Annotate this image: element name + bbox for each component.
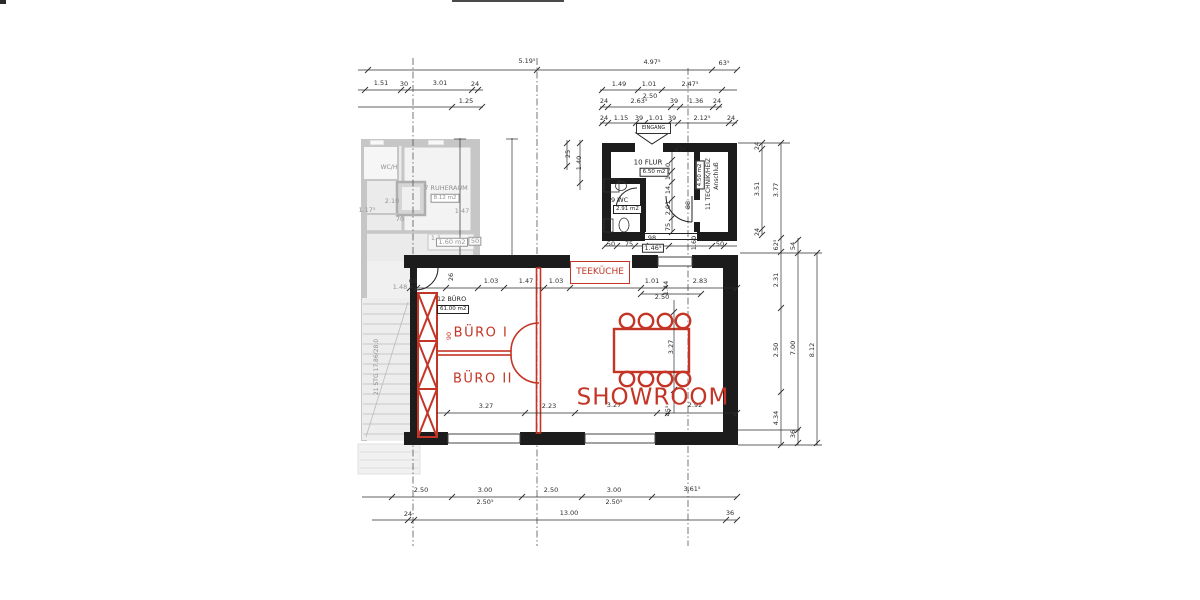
dim-label: 75 — [665, 223, 672, 231]
dim-label: 1.15 — [614, 115, 628, 122]
dim-label: 3.00 — [478, 487, 492, 494]
room-label-wc: 9 WC — [611, 197, 628, 204]
room-label-wch: WC/H — [381, 165, 398, 171]
dim-label: 1.60 m2 — [436, 238, 468, 247]
chairs — [620, 314, 690, 386]
room-label-buero1: BÜRO I — [454, 327, 509, 340]
dim-label: 1.03 — [549, 278, 563, 285]
dim-label: 3.51 — [754, 182, 761, 196]
dim-label: 1.03 — [484, 278, 498, 285]
dim-label: 1.36 — [689, 98, 703, 105]
dim-label: 2.47⁵ — [681, 81, 698, 88]
dim-label: 67⁵ — [675, 147, 686, 154]
dim-label: 2.12⁵ — [693, 115, 710, 122]
area-technik: 4.50 m2 — [696, 161, 705, 190]
dim-label: 3.27 — [668, 340, 675, 354]
dim-label: 54 — [790, 242, 797, 250]
dim-label: 1.60 — [691, 236, 698, 250]
dim-label: 4.34 — [773, 411, 780, 425]
conference-table — [614, 329, 689, 372]
dim-label: 24 — [600, 115, 608, 122]
dim-label: 62⁵ — [773, 240, 780, 251]
area-ruheraum: 8.12 m2 — [431, 194, 460, 203]
dim-label: 1.51 — [374, 80, 388, 87]
red-door-arc-down — [511, 355, 539, 383]
dim-label: 4.97⁵ — [643, 59, 660, 66]
dim-label: 50 — [607, 241, 615, 248]
dim-label: 39 — [635, 115, 643, 122]
scan-artifacts — [0, 0, 564, 4]
dim-label: 2.63⁵ — [630, 98, 647, 105]
dim-label: 50 — [468, 237, 481, 246]
dim-label: 39 — [668, 115, 676, 122]
red-partition-wall — [537, 268, 541, 433]
staircase — [362, 298, 412, 440]
dim-label: 1.40 — [576, 156, 583, 170]
dim-label: 14 — [665, 186, 672, 194]
dim-label: 1.01 — [649, 115, 663, 122]
black-door-topleft — [416, 268, 438, 290]
area-wc: 2.91 m2 — [613, 205, 642, 214]
floorplan-canvas: 5.19⁵4.97⁵63⁵1.51303.01241.251.491.012.4… — [0, 0, 1200, 600]
dim-label: 68 — [409, 278, 417, 285]
dim-label: 24 — [600, 98, 608, 105]
dim-label: 24 — [713, 98, 721, 105]
dim-label: 63⁵ — [719, 60, 730, 67]
red-partition-wall-h — [437, 351, 511, 355]
dim-label: 24 — [404, 511, 412, 518]
dim-label: 24 — [471, 81, 479, 88]
room-label-showroom: SHOWROOM — [577, 387, 730, 410]
dim-label: 2.83 — [693, 278, 707, 285]
dim-label: 24 — [727, 115, 735, 122]
dim-label: 2.50⁵ — [476, 499, 493, 506]
toilet — [619, 218, 629, 232]
dim-label: 1.47 — [455, 208, 469, 215]
dim-label: 3.77 — [773, 183, 780, 197]
dim-label: 75 — [625, 241, 633, 248]
dim-label: 24 — [754, 142, 761, 150]
dim-label: 1.17⁵ — [358, 207, 375, 214]
dim-label: 2.10 — [385, 198, 399, 205]
dim-label: 3.61⁵ — [683, 486, 700, 493]
dim-label: 2.01 — [665, 201, 672, 215]
dim-label: 2.50 — [655, 294, 669, 301]
stairs-label: 21 STG 17.86/28.0 — [374, 339, 380, 395]
dim-label: 39 — [670, 98, 678, 105]
entrance-arrow — [636, 133, 669, 144]
dim-label: 50 — [716, 241, 724, 248]
dim-label: 36 — [790, 430, 797, 438]
dim-label: 2.31 — [773, 273, 780, 287]
dim-label: 2.50⁵ — [605, 499, 622, 506]
room-label-buero12: 12 BÜRO — [437, 296, 466, 303]
red-column — [418, 293, 437, 437]
dim-label: 1.25 — [459, 98, 473, 105]
room-label-technik: 11 TECHNIK/HEIZ — [706, 158, 712, 210]
dim-label: 2.23 — [542, 403, 556, 410]
room-label-teekueche: TEEKÜCHE — [570, 261, 630, 284]
dim-label: 26 — [448, 273, 455, 281]
dim-label: 1.48 — [393, 284, 407, 291]
dim-label: 1.01 — [645, 278, 659, 285]
room-note-technik: Anschluß — [714, 162, 720, 189]
dim-label: 7.00 — [790, 341, 797, 355]
red-annotations — [418, 268, 690, 437]
dimension-lines — [358, 70, 822, 520]
dim-label: 3.00 — [607, 487, 621, 494]
dim-label: 3.27 — [479, 403, 493, 410]
dim-label: 98 — [648, 235, 656, 242]
dim-label: 2.50 — [544, 487, 558, 494]
dim-label: 70 — [396, 216, 404, 223]
dim-label: 25 — [565, 150, 572, 158]
area-flur: 6.50 m2 — [640, 168, 669, 177]
dim-label: 2.50 — [414, 487, 428, 494]
dim-label: 1.47 — [519, 278, 533, 285]
room-label-flur: 10 FLUR — [634, 160, 663, 167]
dim-label: 1.46⁵ — [642, 244, 664, 253]
door-width-label: 90 — [446, 332, 453, 340]
entrance-label: EINGANG — [636, 123, 671, 134]
dim-label: 1.49 — [612, 81, 626, 88]
dim-label: 88 — [685, 201, 692, 209]
room-label-buero2: BÜRO II — [453, 373, 513, 386]
dim-label: 3.01 — [433, 80, 447, 87]
dim-label: 13.00 — [560, 510, 579, 517]
dim-label: 2.50 — [773, 343, 780, 357]
dim-label: 8.12 — [809, 343, 816, 357]
red-door-arc-up — [511, 323, 539, 351]
dim-label: 1.01 — [642, 81, 656, 88]
room-label-ruheraum: 7 RUHERAUM — [424, 185, 468, 192]
dim-label: 36 — [726, 510, 734, 517]
dimension-ticks — [362, 67, 820, 523]
area-buero12: 61.00 m2 — [437, 305, 469, 314]
dim-label: 30 — [400, 81, 408, 88]
dim-label: 24 — [754, 228, 761, 236]
floorplan-drawing — [0, 0, 1200, 600]
dim-label: 5.19⁵ — [518, 58, 535, 65]
